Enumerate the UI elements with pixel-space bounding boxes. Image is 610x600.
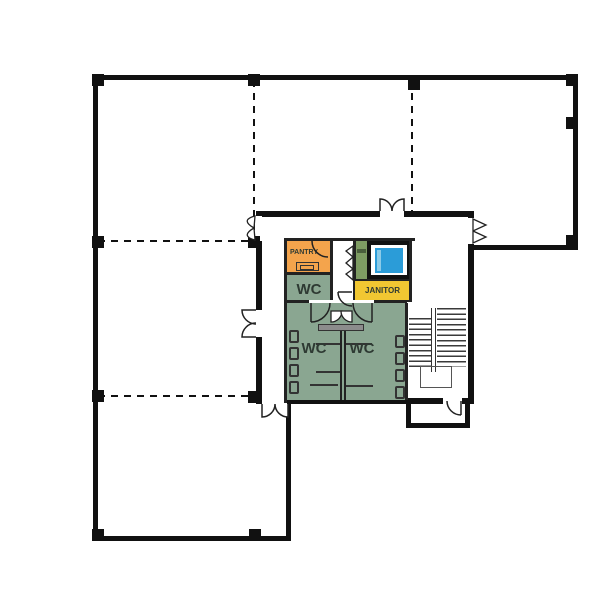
- column: [248, 391, 260, 403]
- vestibule-wall-right: [465, 404, 470, 428]
- grid-line-vertical-right: [411, 80, 413, 211]
- stair-flight-left: [409, 318, 431, 367]
- column: [248, 74, 260, 86]
- door-opening-west: [256, 310, 262, 337]
- column: [248, 236, 260, 248]
- wc-upper-label: WC: [289, 277, 329, 301]
- wc-fixture: [289, 381, 299, 394]
- bifold-door-east: [473, 219, 486, 243]
- stair-landing-outline: [420, 366, 452, 388]
- stair-rail: [431, 308, 436, 372]
- grid-line-vertical-left: [253, 80, 255, 238]
- right-wing-bottom-wall: [470, 245, 578, 250]
- double-door-southwest: [262, 404, 288, 417]
- shaft-label-mark: [357, 249, 366, 253]
- plumbing-wall: [344, 331, 346, 400]
- door-opening-east: [468, 218, 474, 244]
- floor-plan: PANTRY WC JANITOR WC WC: [0, 0, 610, 600]
- column: [92, 74, 104, 86]
- wc-fixture: [395, 386, 405, 399]
- wc-right-label: WC: [348, 338, 376, 358]
- wc-door-openings: [309, 300, 374, 303]
- column: [92, 390, 104, 402]
- exterior-wall-right: [573, 75, 578, 250]
- door-opening-stair-exit: [443, 398, 462, 404]
- pantry-counter: [296, 262, 319, 271]
- column: [92, 529, 104, 541]
- wc-fixture: [289, 364, 299, 377]
- column: [249, 529, 261, 541]
- janitor-label: JANITOR: [355, 281, 410, 299]
- stall-partition: [346, 385, 373, 387]
- accordion-door-shaft: [346, 246, 353, 280]
- wc-fixture: [395, 369, 405, 382]
- bottom-wing-bottom-wall: [93, 536, 291, 541]
- double-door-west: [242, 310, 256, 337]
- vestibule-wall-bottom: [406, 423, 470, 428]
- column: [566, 235, 578, 247]
- stall-partition: [310, 384, 338, 386]
- corridor-wall-left: [330, 241, 333, 303]
- stall-partition: [316, 371, 340, 373]
- wc-left-label: WC: [300, 338, 328, 358]
- bottom-wing-right-wall: [286, 404, 291, 541]
- pantry-label: PANTRY: [288, 248, 330, 257]
- wc-fixture: [395, 352, 405, 365]
- plumbing-wall: [340, 331, 342, 400]
- grid-line-horizontal-upper: [98, 240, 249, 242]
- stair-flight-right: [437, 308, 466, 367]
- core-block-right-wall-lower: [405, 303, 408, 400]
- core-wall-top: [256, 211, 474, 217]
- double-door-top: [380, 199, 404, 211]
- column: [566, 74, 578, 86]
- sink-counter: [318, 324, 364, 331]
- column: [92, 236, 104, 248]
- wc-fixture: [289, 347, 299, 360]
- pantry-sink: [300, 265, 314, 270]
- core-block-right-wall-upper: [409, 238, 412, 302]
- elevator-door: [377, 250, 381, 271]
- exterior-wall-top: [93, 75, 578, 80]
- column: [566, 117, 578, 129]
- door-opening-top: [380, 211, 404, 217]
- wc-fixture: [289, 330, 299, 343]
- wc-fixture: [395, 335, 405, 348]
- grid-line-horizontal-lower: [98, 395, 249, 397]
- exterior-wall-left: [93, 75, 98, 541]
- column: [408, 78, 420, 90]
